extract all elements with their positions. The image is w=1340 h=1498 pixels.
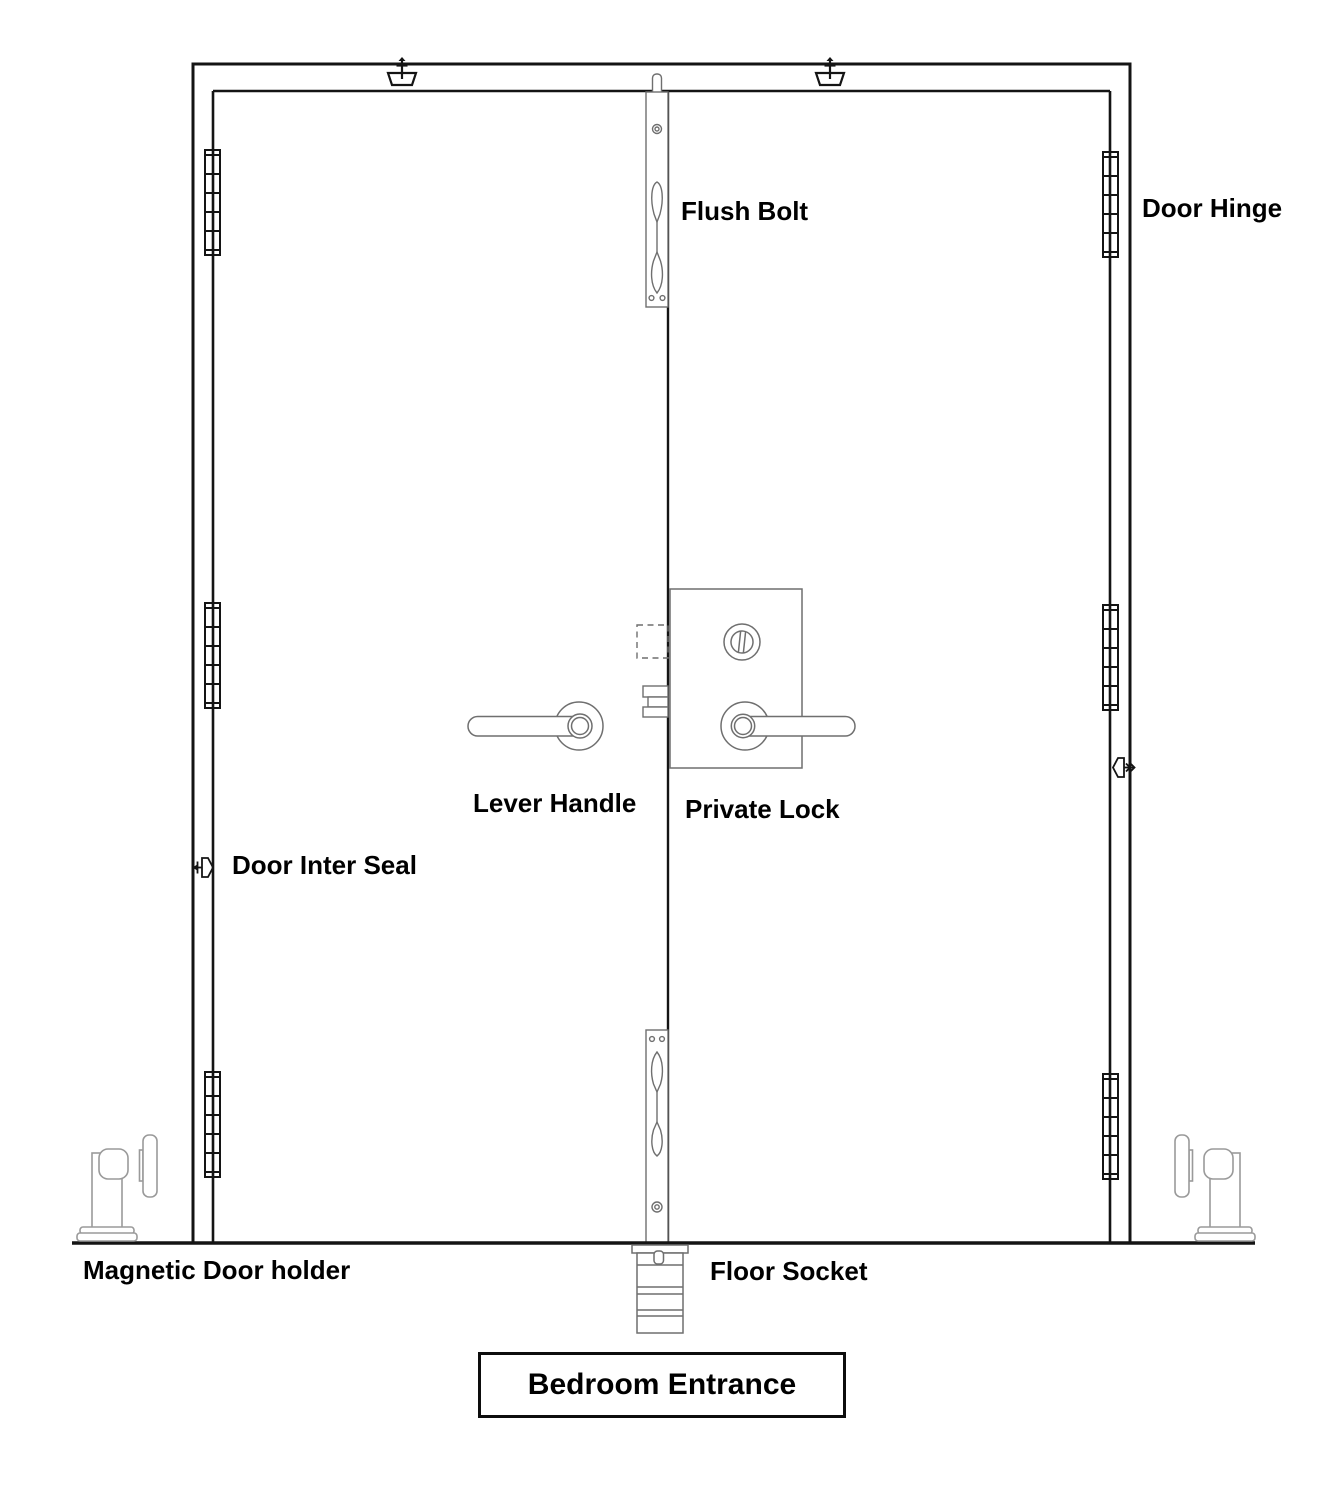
label-door-inter-seal: Door Inter Seal <box>232 851 417 880</box>
magnetic-door-holder-graphic <box>1175 1135 1255 1241</box>
floor-socket-graphic <box>632 1245 688 1333</box>
strike-dashed-box <box>637 625 668 658</box>
flush-bolt-bottom-graphic <box>646 1030 668 1243</box>
magnetic-door-holder-graphic <box>77 1135 157 1241</box>
latch-bolt-graphic <box>643 686 668 717</box>
label-lever-handle: Lever Handle <box>473 789 636 818</box>
door-inter-seal-icon <box>193 858 214 877</box>
lever-handle-graphic <box>468 702 603 750</box>
private-lock-graphic <box>670 589 855 768</box>
label-magnetic-door-holder: Magnetic Door holder <box>83 1256 350 1285</box>
bedroom-entrance-text: Bedroom Entrance <box>528 1368 796 1402</box>
label-floor-socket: Floor Socket <box>710 1257 867 1286</box>
door-closer-icon <box>816 57 844 85</box>
label-private-lock: Private Lock <box>685 795 840 824</box>
bedroom-entrance-label: Bedroom Entrance <box>478 1352 846 1418</box>
label-flush-bolt: Flush Bolt <box>681 197 808 226</box>
flush-bolt-top-graphic <box>646 74 668 307</box>
door-closer-icon <box>388 57 416 85</box>
label-door-hinge: Door Hinge <box>1142 194 1282 223</box>
door-hardware-diagram: Flush Bolt Door Hinge Lever Handle Priva… <box>0 0 1340 1498</box>
